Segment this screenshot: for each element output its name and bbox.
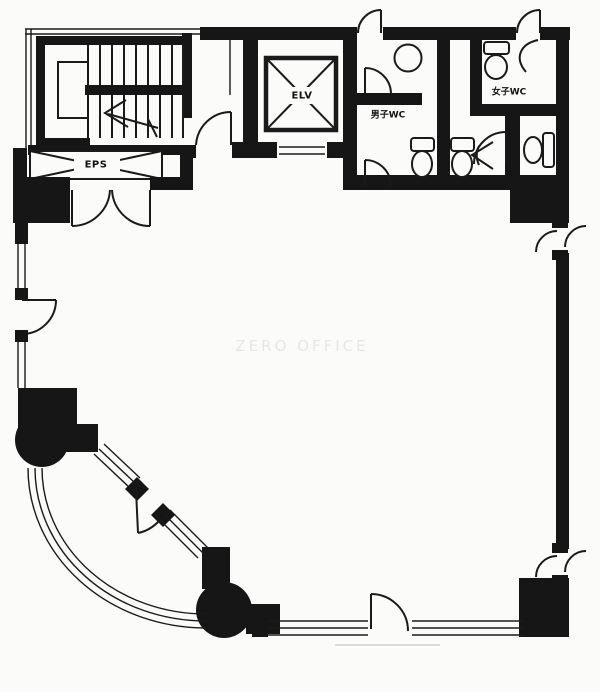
mens-toilet-tank bbox=[411, 138, 434, 151]
entrance-door-left bbox=[72, 190, 110, 226]
east-door-upper bbox=[536, 226, 586, 252]
south-door bbox=[371, 594, 408, 631]
womens-toilet-bowl bbox=[485, 55, 507, 79]
womens-wc-screen bbox=[520, 40, 538, 72]
mens-toilet-bowl bbox=[412, 151, 432, 177]
column-south bbox=[196, 582, 252, 638]
curved-window bbox=[28, 468, 206, 628]
stall-toilet-tank bbox=[451, 138, 474, 151]
mens-wc-label: 男子WC bbox=[371, 108, 406, 121]
floor-plan-page: EPS ELV 男子WC 女子WC ZERO OFFICE bbox=[0, 0, 600, 692]
watermark-text: ZERO OFFICE bbox=[235, 337, 368, 355]
eps-shaft bbox=[28, 145, 190, 179]
elevator-shaft bbox=[243, 28, 357, 190]
mens-wc-outer-door bbox=[358, 10, 381, 33]
womens-toilet-tank bbox=[484, 42, 509, 54]
stall-toilet-bowl bbox=[452, 151, 472, 177]
elevator-label: ELV bbox=[291, 91, 312, 102]
east-wall bbox=[519, 40, 586, 637]
lower-toilet-tank bbox=[543, 133, 554, 167]
eps-label: EPS bbox=[85, 160, 108, 171]
south-wall bbox=[252, 594, 524, 645]
staircase bbox=[25, 29, 233, 150]
lower-toilet-bowl bbox=[524, 137, 542, 163]
west-wall bbox=[15, 218, 98, 452]
west-door bbox=[22, 300, 56, 334]
east-door-lower bbox=[536, 551, 586, 577]
wc-block bbox=[343, 28, 567, 223]
mens-wc-door bbox=[365, 68, 391, 94]
curved-corner bbox=[15, 413, 280, 638]
womens-wc-label: 女子WC bbox=[492, 85, 527, 98]
mens-wc-sink bbox=[395, 45, 422, 72]
office-entry-door bbox=[196, 112, 231, 145]
entrance-door-right bbox=[112, 190, 150, 226]
column-west bbox=[15, 413, 69, 467]
womens-wc-outer-door bbox=[517, 10, 540, 33]
